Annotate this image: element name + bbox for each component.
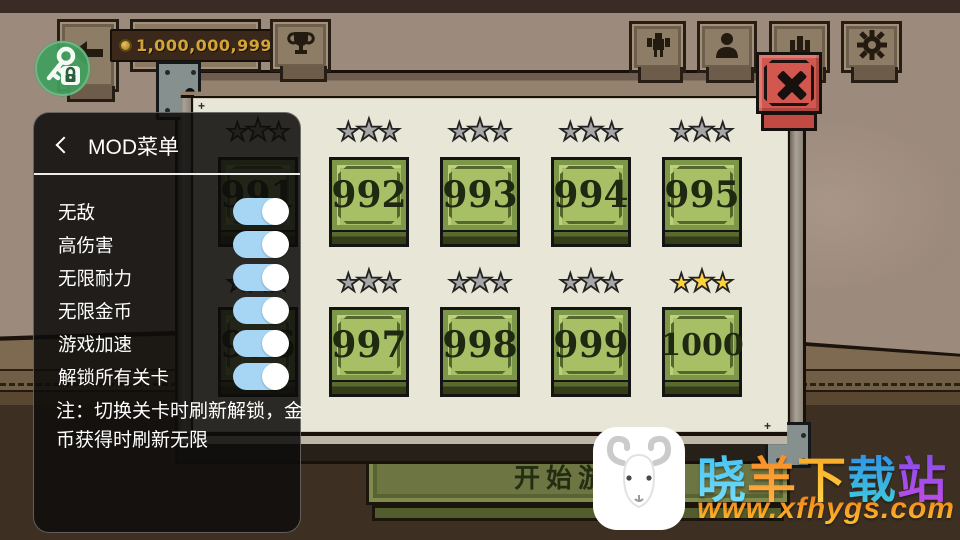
mod-item-stamina: 无限耐力 xyxy=(34,263,300,293)
level-tile-992[interactable]: 992 xyxy=(329,157,409,247)
star-rating: ★★★ xyxy=(440,267,520,297)
toggle-coins[interactable] xyxy=(233,297,288,324)
panel-corner-mark: + xyxy=(764,419,771,433)
panel-corner-mark: + xyxy=(198,99,205,113)
trophy-button[interactable] xyxy=(270,19,331,72)
level-tile-997[interactable]: 997 xyxy=(329,307,409,397)
level-tile-998[interactable]: 998 xyxy=(440,307,520,397)
gear-icon xyxy=(856,29,888,66)
mod-item-speed: 游戏加速 xyxy=(34,329,300,359)
mod-item-coins: 无限金币 xyxy=(34,296,300,326)
profile-button[interactable] xyxy=(697,21,757,73)
toggle-invincible[interactable] xyxy=(233,198,288,225)
mod-menu-header: MOD菜单 xyxy=(34,113,300,173)
star-rating: ★★★ xyxy=(551,267,631,297)
mod-item-high-damage: 高伤害 xyxy=(34,230,300,260)
level-tile-994[interactable]: 994 xyxy=(551,157,631,247)
mod-menu-panel: MOD菜单 无敌 高伤害 无限耐力 无限金币 游戏加速 解锁所有关卡 注：切换关… xyxy=(33,112,301,533)
toggle-speed[interactable] xyxy=(233,330,288,357)
character-button[interactable] xyxy=(629,21,686,73)
ram-icon xyxy=(601,433,677,524)
star-rating: ★★★ xyxy=(329,116,409,146)
gold-coin-icon xyxy=(119,39,132,52)
person-icon xyxy=(712,30,742,65)
settings-button[interactable] xyxy=(841,21,902,73)
mod-item-unlock-all: 解锁所有关卡 xyxy=(34,362,300,392)
level-tile-993[interactable]: 993 xyxy=(440,157,520,247)
level-tile-1000[interactable]: 1000 xyxy=(662,307,742,397)
mod-item-invincible: 无敌 xyxy=(34,197,300,227)
game-screen: 1,000,000,999 xyxy=(0,0,960,540)
level-tile-995[interactable]: 995 xyxy=(662,157,742,247)
key-lock-icon xyxy=(33,85,92,102)
coin-count: 1,000,000,999 xyxy=(136,36,272,55)
star-rating: ★★★ xyxy=(440,116,520,146)
star-rating: ★★★ xyxy=(662,116,742,146)
star-rating: ★★★ xyxy=(551,116,631,146)
chevron-left-icon[interactable] xyxy=(56,137,73,154)
toggle-stamina[interactable] xyxy=(233,264,288,291)
mod-menu-note: 注：切换关卡时刷新解锁，金币获得时刷新无限 xyxy=(56,397,310,455)
star-rating-gold: ★★★ xyxy=(662,267,742,297)
character-icon xyxy=(643,30,673,65)
top-edge-strip xyxy=(0,0,960,13)
close-button[interactable] xyxy=(756,52,822,132)
close-button-base xyxy=(761,112,817,131)
mod-menu-title: MOD菜单 xyxy=(88,131,179,161)
trophy-icon xyxy=(287,29,315,62)
toggle-high-damage[interactable] xyxy=(233,231,288,258)
star-rating: ★★★ xyxy=(329,267,409,297)
level-tile-999[interactable]: 999 xyxy=(551,307,631,397)
mod-fab-button[interactable] xyxy=(33,39,92,98)
watermark-url: www.xfhygs.com xyxy=(697,492,955,526)
toggle-unlock-all[interactable] xyxy=(233,363,288,390)
watermark-logo xyxy=(593,427,685,530)
divider xyxy=(34,173,300,175)
